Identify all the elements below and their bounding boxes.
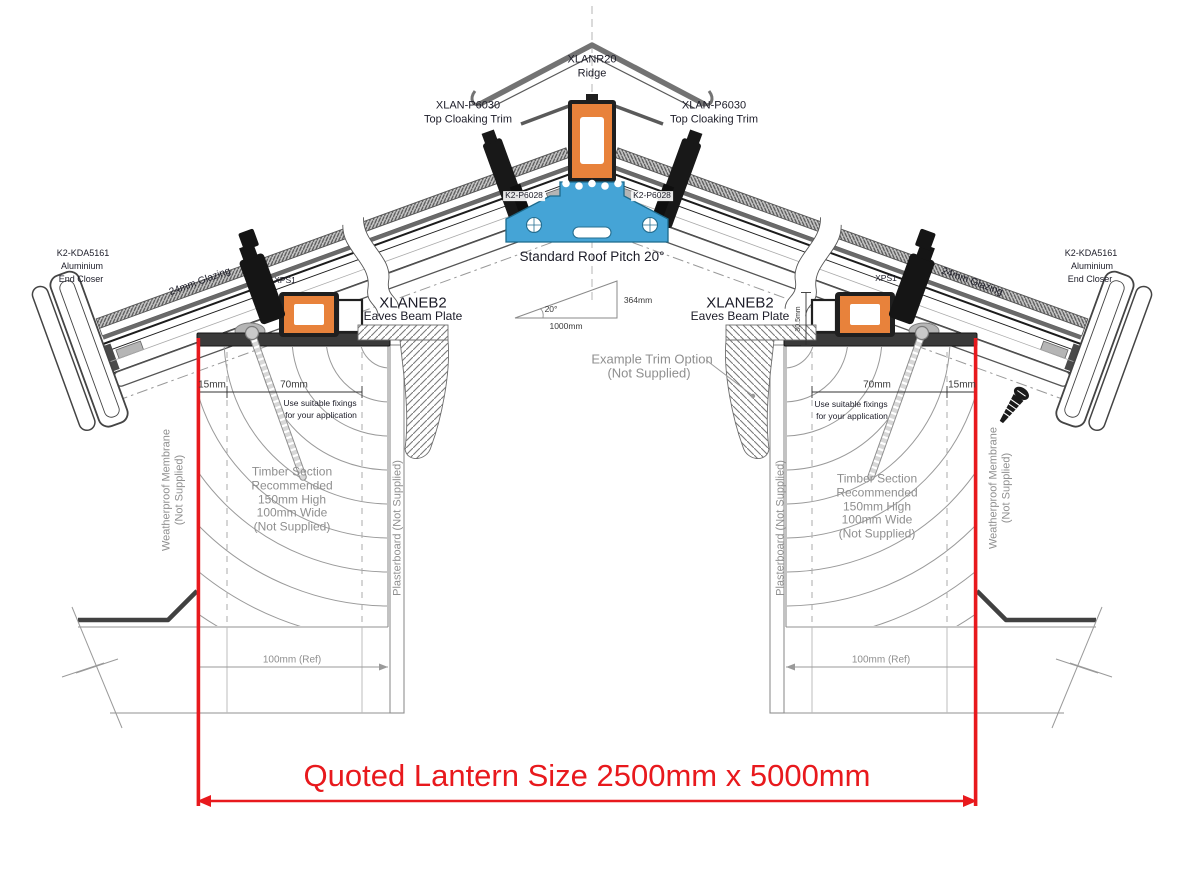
end-closer-right-material: Aluminium [1071, 261, 1113, 271]
glazing-bar-left-code: K2-P6028 [503, 191, 545, 201]
quoted-size-dimension-line [197, 795, 977, 807]
dim-15mm-left: 15mm [198, 379, 226, 391]
dim-70mm-left: 70mm [280, 379, 308, 391]
top-cloaking-left-code: XLAN-P6030 [436, 100, 500, 113]
break-mark-left [62, 607, 122, 728]
eaves-beam-right-name: Eaves Beam Plate [691, 310, 790, 324]
screw-icon [995, 384, 1032, 427]
fixings-note-right-1: Use suitable fixings [814, 400, 887, 410]
quoted-lantern-size: Quoted Lantern Size 2500mm x 5000mm [304, 758, 871, 794]
ridge-name-label: Ridge [578, 68, 607, 81]
wall-timber-assembly-left [54, 2, 726, 806]
wall-ref-dim-left: 100mm (Ref) [263, 654, 321, 666]
end-closer-left-material: Aluminium [61, 261, 103, 271]
pitch-rise-label: 364mm [624, 296, 652, 306]
plasterboard-label-right: Plasterboard (Not Supplied) [775, 460, 788, 596]
pitch-triangle [515, 281, 617, 318]
wall-ref-dim-right: 100mm (Ref) [852, 654, 910, 666]
top-cloaking-right-name: Top Cloaking Trim [670, 114, 758, 127]
pitch-angle-label: 20° [545, 305, 558, 315]
fixings-note-left-2: for your application [285, 411, 357, 421]
break-mark-right [1052, 607, 1112, 728]
ridge-thermal-profile [568, 94, 616, 182]
dim-70mm-right: 70mm [863, 379, 891, 391]
membrane-label-right: Weatherproof Membrane (Not Supplied) [987, 427, 1012, 549]
end-closer-left-name: End Closer [59, 274, 104, 284]
spacer-right-label: XPS1 [875, 274, 897, 284]
spacer-left-label: XPS1 [274, 276, 296, 286]
timber-note-right: Timber Section Recommended 150mm High 10… [836, 473, 917, 542]
top-cloaking-right-code: XLAN-P6030 [682, 100, 746, 113]
end-closer-left-code: K2-KDA5161 [57, 248, 110, 258]
top-cloaking-left-name: Top Cloaking Trim [424, 114, 512, 127]
dim-15mm-right: 15mm [948, 379, 976, 391]
plasterboard-label-left: Plasterboard (Not Supplied) [392, 460, 405, 596]
glazing-bar-right-code: K2-P6028 [631, 191, 673, 201]
pitch-title: Standard Roof Pitch 20° [520, 249, 665, 265]
dim-beam-height: 30.5mm [795, 306, 803, 331]
ridge-code-label: XLANR20 [568, 54, 617, 67]
fixings-note-left-1: Use suitable fixings [283, 399, 356, 409]
lantern-section-drawing: XLANR20 Ridge XLAN-P6030 Top Cloaking Tr… [0, 0, 1184, 872]
membrane-label-left: Weatherproof Membrane (Not Supplied) [160, 429, 185, 551]
end-closer-right-code: K2-KDA5161 [1065, 248, 1118, 258]
timber-note-left: Timber Section Recommended 150mm High 10… [251, 466, 332, 535]
trim-option-line2: (Not Supplied) [607, 367, 690, 382]
end-closer-right-name: End Closer [1068, 274, 1113, 284]
pitch-run-label: 1000mm [549, 322, 582, 332]
eaves-beam-left-name: Eaves Beam Plate [364, 310, 463, 324]
fixings-note-right-2: for your application [816, 412, 888, 422]
